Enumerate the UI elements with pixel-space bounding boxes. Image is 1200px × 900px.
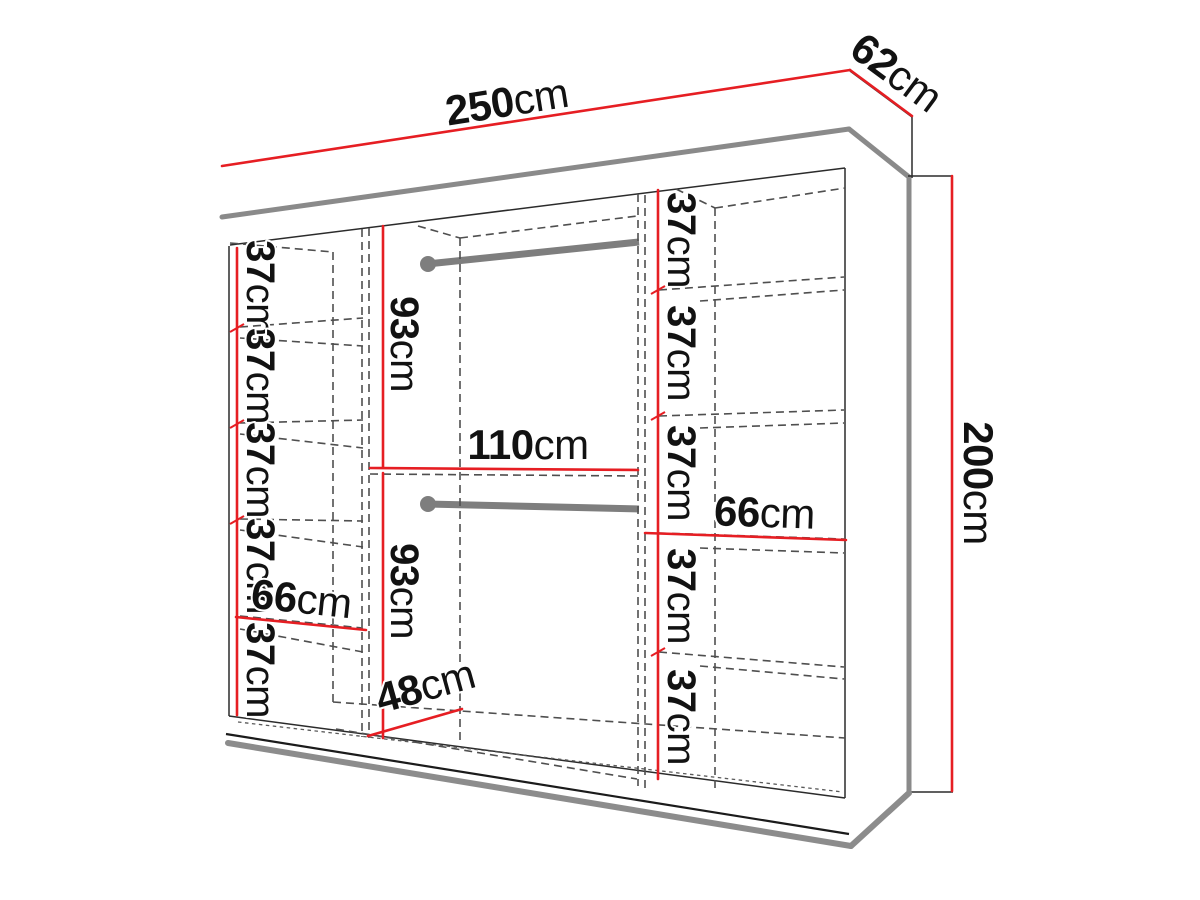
- middle-upper-height-label: 93cm: [382, 296, 426, 392]
- wardrobe-diagram-svg: 250cm 62cm 200cm 37cm 37cm 37cm 37cm 37c…: [0, 0, 1200, 900]
- left-shelf-spacing-label-1: 37cm: [238, 240, 282, 336]
- overall-height-label: 200cm: [955, 421, 1002, 545]
- side-face: [850, 71, 912, 806]
- right-shelf-spacing-label-4: 37cm: [659, 548, 703, 644]
- upper-rod-end-cap: [420, 256, 436, 272]
- middle-lower-height-label: 93cm: [382, 543, 426, 639]
- left-shelf-spacing-label-2: 37cm: [238, 328, 282, 424]
- middle-inner-width-label: 110cm: [467, 421, 588, 468]
- wardrobe-dimension-diagram: 250cm 62cm 200cm 37cm 37cm 37cm 37cm 37c…: [0, 0, 1200, 900]
- right-shelf-spacing-label-3: 37cm: [659, 425, 703, 521]
- left-shelf-spacing-label-5: 37cm: [238, 622, 282, 718]
- right-shelf-spacing-label-5: 37cm: [659, 669, 703, 765]
- lower-rod-end-cap: [420, 496, 436, 512]
- right-inner-width-label: 66cm: [713, 487, 815, 537]
- lower-hanging-rod: [427, 504, 639, 509]
- right-shelf-spacing-label-2: 37cm: [659, 305, 703, 401]
- left-shelf-spacing-label-3: 37cm: [238, 422, 282, 518]
- right-shelf-spacing-label-1: 37cm: [659, 192, 703, 288]
